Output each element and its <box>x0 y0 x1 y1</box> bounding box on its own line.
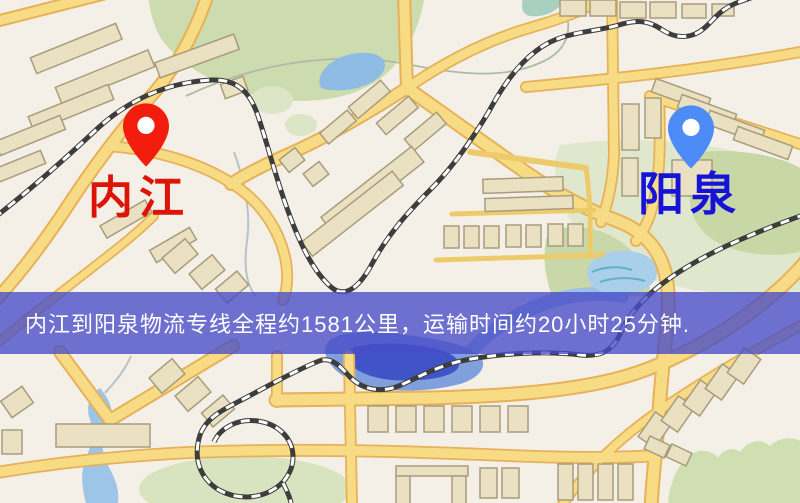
red-location-pin-icon <box>123 102 169 168</box>
destination-city-label: 阳泉 <box>638 172 742 218</box>
map-screenshot: 内江 阳泉 内江到阳泉物流专线全程约1581公里，运输时间约20小时25分钟. <box>0 0 800 503</box>
map-canvas <box>0 0 800 503</box>
route-info-text: 内江到阳泉物流专线全程约1581公里，运输时间约20小时25分钟. <box>0 307 690 339</box>
origin-city-label: 内江 <box>88 176 190 221</box>
blue-location-pin-icon <box>668 104 714 170</box>
route-info-banner: 内江到阳泉物流专线全程约1581公里，运输时间约20小时25分钟. <box>0 292 800 354</box>
